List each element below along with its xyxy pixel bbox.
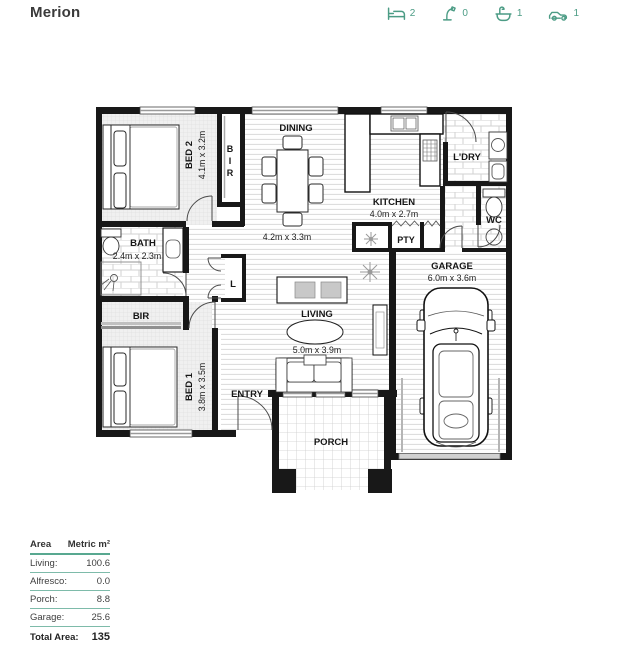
total-label: Total Area:: [30, 632, 79, 643]
table-row: Porch: 8.8: [30, 591, 110, 609]
car: [417, 288, 495, 447]
room-label-living: LIVING: [301, 309, 333, 320]
room-label-linen: L: [230, 279, 236, 290]
svg-text:B: B: [227, 144, 234, 154]
svg-text:I: I: [229, 156, 232, 166]
svg-text:R: R: [227, 168, 234, 178]
room-label-pty: PTY: [397, 235, 415, 245]
room-dims-bath: 2.4m x 2.3m: [113, 251, 161, 261]
room-label-kitchen: KITCHEN: [373, 197, 415, 208]
room-dims-kitchen: 4.0m x 2.7m: [370, 209, 418, 219]
room-label-bir1: BIR: [133, 311, 150, 322]
room-label-entry: ENTRY: [231, 389, 264, 400]
room-label-bath: BATH: [130, 238, 156, 249]
area-table: Area Metric m² Living: 100.6 Alfresco: 0…: [30, 536, 110, 646]
room-label-ldry: L'DRY: [453, 152, 481, 163]
room-label-garage: GARAGE: [431, 261, 473, 272]
room-dims-bed2: 4.1m x 3.2m: [197, 131, 207, 179]
area-header-label: Area: [30, 539, 51, 550]
room-dims-bed1: 3.8m x 3.5m: [197, 363, 207, 411]
row-label: Porch:: [30, 594, 57, 605]
table-row: Garage: 25.6: [30, 609, 110, 627]
row-value: 25.6: [92, 612, 111, 623]
room-label-wc: WC: [486, 215, 502, 226]
table-total-row: Total Area: 135: [30, 627, 110, 646]
row-label: Living:: [30, 558, 57, 569]
bed2-furniture: [103, 125, 179, 209]
room-label-porch: PORCH: [314, 437, 348, 448]
row-value: 8.8: [97, 594, 110, 605]
table-row: Living: 100.6: [30, 555, 110, 573]
row-value: 100.6: [86, 558, 110, 569]
room-label-bed1: BED 1: [184, 372, 195, 401]
room-label-dining: DINING: [279, 123, 312, 134]
table-row: Alfresco: 0.0: [30, 573, 110, 591]
row-label: Alfresco:: [30, 576, 67, 587]
room-dims-living: 5.0m x 3.9m: [293, 345, 341, 355]
floorplan-page: Merion 2 0: [0, 0, 619, 650]
room-label-bed2: BED 2: [184, 141, 195, 169]
room-dims-garage: 6.0m x 3.6m: [428, 273, 476, 283]
area-table-header: Area Metric m²: [30, 536, 110, 555]
room-dims-dining: 4.2m x 3.3m: [263, 232, 311, 242]
row-value: 0.0: [97, 576, 110, 587]
bed1-furniture: [103, 347, 177, 427]
area-header-metric: Metric m²: [68, 539, 110, 550]
laundry-fixtures: [489, 132, 507, 182]
row-label: Garage:: [30, 612, 64, 623]
total-value: 135: [92, 631, 110, 643]
